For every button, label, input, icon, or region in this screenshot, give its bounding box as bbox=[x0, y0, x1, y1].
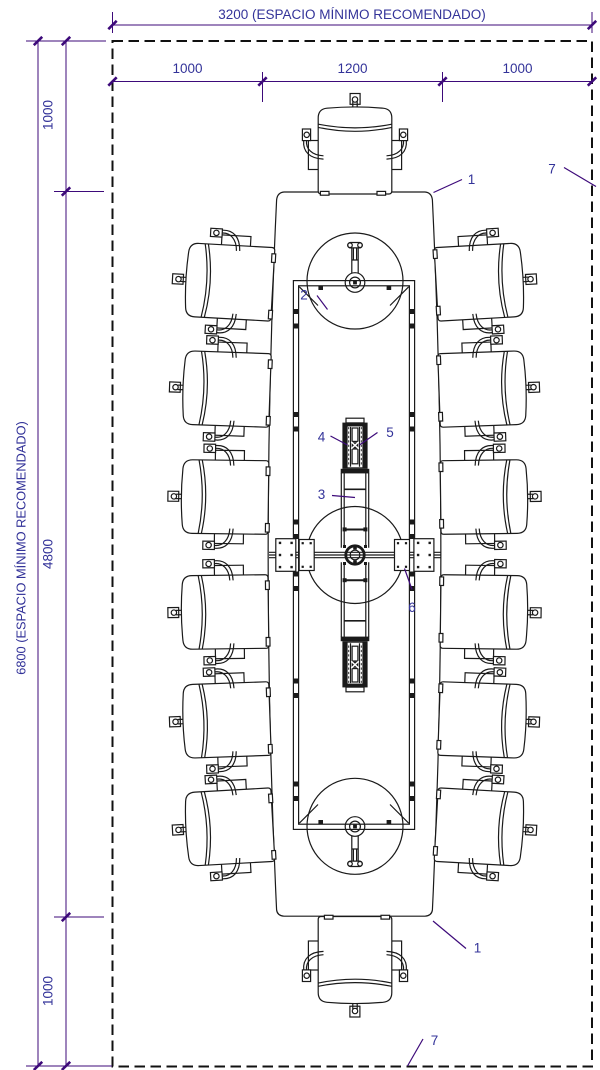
svg-text:1000: 1000 bbox=[172, 61, 202, 76]
svg-text:4800: 4800 bbox=[41, 539, 56, 569]
svg-text:3: 3 bbox=[318, 487, 326, 502]
svg-text:5: 5 bbox=[386, 425, 394, 440]
svg-text:1000: 1000 bbox=[41, 976, 56, 1006]
svg-text:2: 2 bbox=[300, 288, 308, 303]
svg-text:6800 (ESPACIO MÍNIMO RECOMENDA: 6800 (ESPACIO MÍNIMO RECOMENDADO) bbox=[14, 421, 29, 675]
svg-text:1: 1 bbox=[468, 172, 476, 187]
svg-text:1200: 1200 bbox=[337, 61, 367, 76]
svg-text:7: 7 bbox=[548, 162, 556, 177]
svg-text:3200 (ESPACIO MÍNIMO RECOMENDA: 3200 (ESPACIO MÍNIMO RECOMENDADO) bbox=[218, 7, 486, 22]
svg-text:1: 1 bbox=[474, 941, 482, 956]
svg-text:7: 7 bbox=[431, 1033, 439, 1048]
svg-text:6: 6 bbox=[408, 600, 416, 615]
svg-text:1000: 1000 bbox=[502, 61, 532, 76]
svg-text:1000: 1000 bbox=[41, 100, 56, 130]
svg-text:4: 4 bbox=[318, 430, 326, 445]
